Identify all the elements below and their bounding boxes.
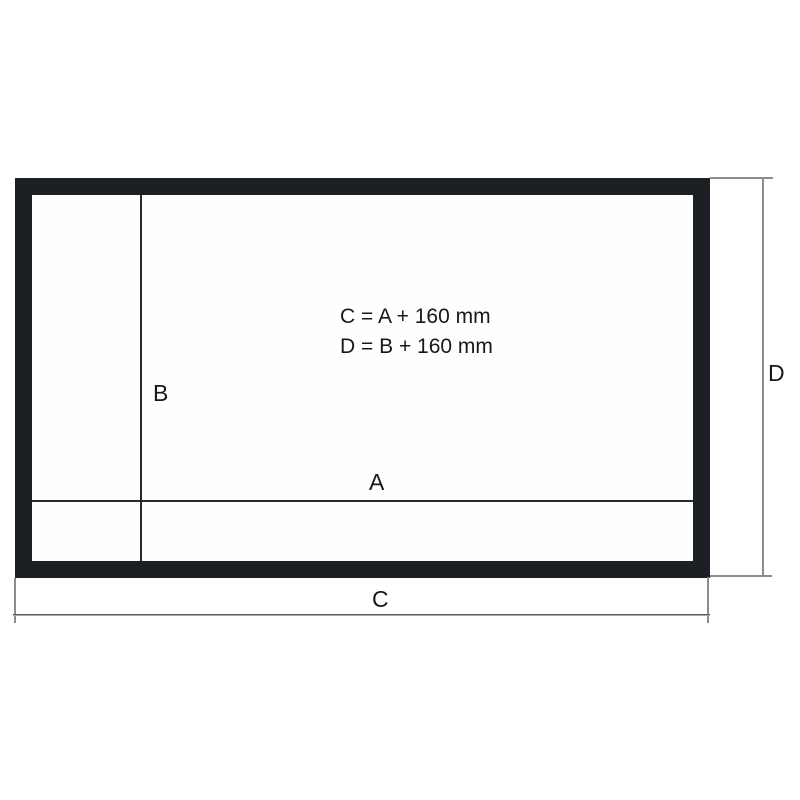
d-dimension-line [762, 178, 764, 577]
c-dimension-line [13, 614, 710, 616]
screen-outer-frame [15, 178, 710, 578]
formula-c: C = A + 160 mm [340, 302, 493, 332]
c-dimension-tick-left [14, 578, 16, 623]
label-b: B [153, 382, 169, 405]
label-a: A [369, 471, 385, 494]
formula-d: D = B + 160 mm [340, 332, 493, 362]
inner-vertical-line-b [140, 195, 142, 561]
inner-horizontal-line-a [32, 500, 693, 502]
c-dimension-tick-right [707, 577, 709, 623]
label-c: C [372, 588, 389, 611]
label-d: D [768, 362, 785, 385]
formula-block: C = A + 160 mm D = B + 160 mm [340, 302, 493, 362]
screen-dimensions-diagram: C = A + 160 mm D = B + 160 mm B A D C [0, 0, 800, 800]
